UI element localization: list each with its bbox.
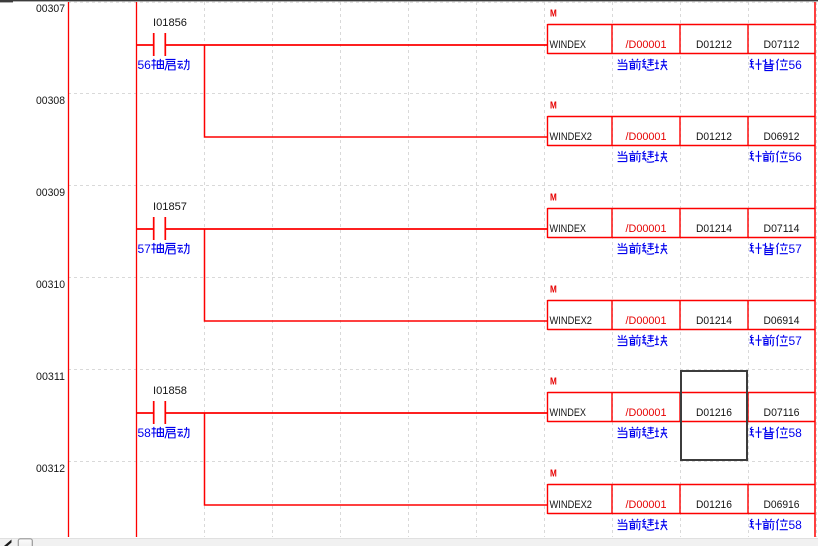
svg-text:56: 56: [789, 58, 803, 72]
svg-text:00307: 00307: [36, 3, 65, 15]
svg-text:/D00001: /D00001: [626, 223, 667, 235]
svg-text:D01216: D01216: [696, 407, 732, 419]
svg-text:WINDEX2: WINDEX2: [550, 499, 593, 511]
svg-text:D07114: D07114: [764, 223, 800, 235]
svg-text:WINDEX2: WINDEX2: [550, 131, 593, 143]
svg-text:I01857: I01857: [153, 201, 187, 213]
svg-text:D01212: D01212: [696, 39, 732, 51]
svg-text:58: 58: [789, 426, 803, 440]
svg-text:D01214: D01214: [696, 315, 732, 327]
svg-text:WINDEX2: WINDEX2: [550, 315, 593, 327]
svg-text:00311: 00311: [36, 371, 65, 383]
svg-text:M: M: [550, 285, 557, 296]
svg-text:D07112: D07112: [764, 39, 800, 51]
svg-text:58: 58: [138, 426, 152, 440]
svg-text:D06916: D06916: [764, 499, 800, 511]
svg-text:00309: 00309: [36, 187, 65, 199]
svg-text:D01212: D01212: [696, 131, 732, 143]
svg-text:D01216: D01216: [696, 499, 732, 511]
svg-text:/D00001: /D00001: [626, 499, 667, 511]
svg-text:00308: 00308: [36, 95, 65, 107]
svg-text:WINDEX: WINDEX: [550, 39, 587, 51]
svg-text:58: 58: [789, 518, 803, 532]
svg-text:D07116: D07116: [764, 407, 800, 419]
svg-text:56: 56: [789, 150, 803, 164]
svg-text:57: 57: [789, 334, 803, 348]
svg-text:57: 57: [138, 242, 152, 256]
svg-text:M: M: [550, 469, 557, 480]
svg-text:/D00001: /D00001: [626, 315, 667, 327]
svg-text:00312: 00312: [36, 463, 65, 475]
svg-text:D06912: D06912: [764, 131, 800, 143]
svg-text:/D00001: /D00001: [626, 407, 667, 419]
svg-text:/D00001: /D00001: [626, 39, 667, 51]
svg-text:56: 56: [138, 58, 152, 72]
svg-text:/D00001: /D00001: [626, 131, 667, 143]
svg-text:D06914: D06914: [764, 315, 800, 327]
svg-text:I01858: I01858: [153, 385, 187, 397]
svg-text:M: M: [550, 101, 557, 112]
svg-text:M: M: [550, 9, 557, 20]
svg-text:M: M: [550, 193, 557, 204]
svg-text:I01856: I01856: [153, 17, 187, 29]
svg-text:WINDEX: WINDEX: [550, 223, 587, 235]
svg-text:00310: 00310: [36, 279, 65, 291]
svg-text:57: 57: [789, 242, 803, 256]
svg-text:M: M: [550, 377, 557, 388]
svg-text:D01214: D01214: [696, 223, 732, 235]
svg-text:WINDEX: WINDEX: [550, 407, 587, 419]
